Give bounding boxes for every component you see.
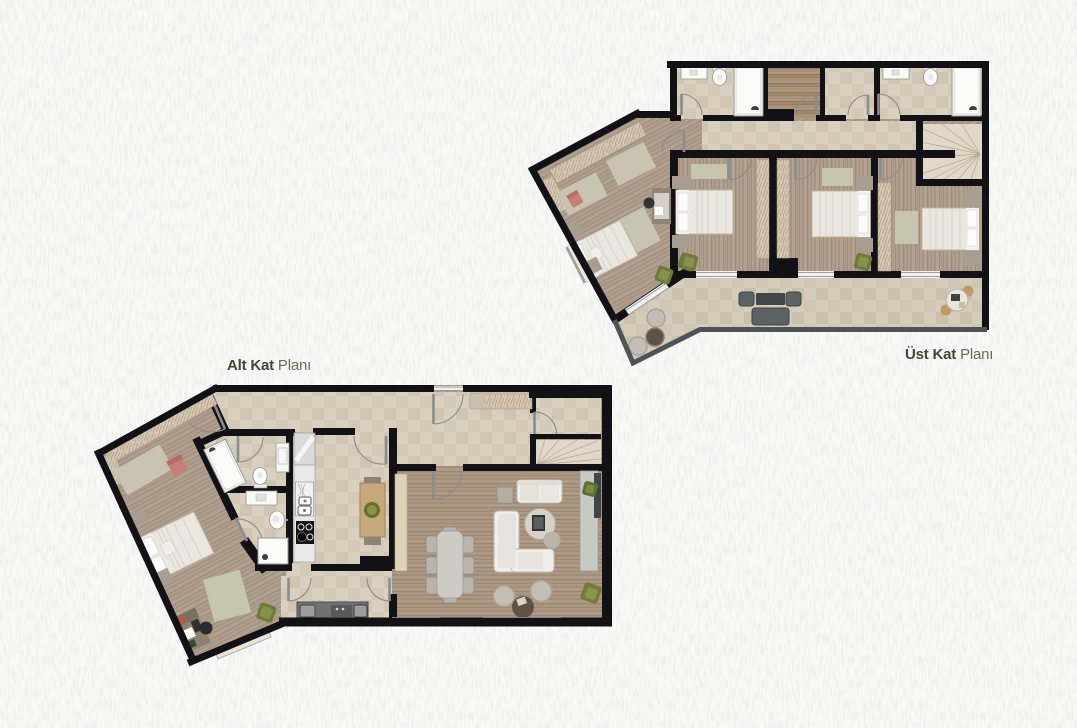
svg-text:Üst Kat Planı: Üst Kat Planı [905, 346, 993, 363]
svg-text:Alt Kat Planı: Alt Kat Planı [227, 357, 311, 374]
